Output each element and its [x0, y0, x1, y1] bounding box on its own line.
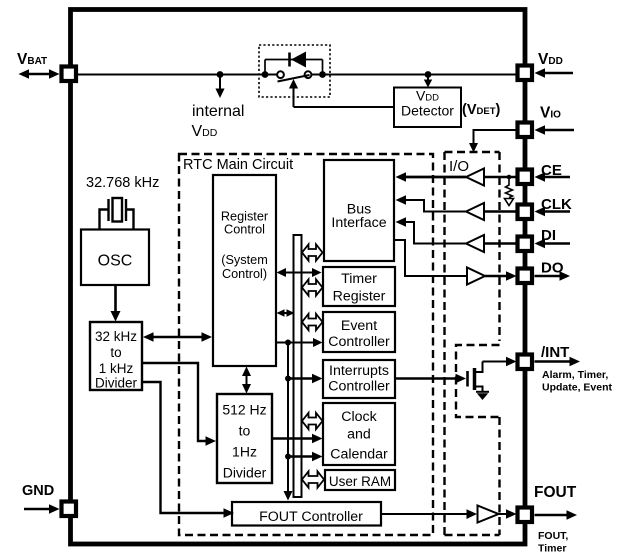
- svg-text:Control: Control: [224, 223, 265, 237]
- svg-text:Register: Register: [221, 210, 269, 224]
- svg-text:/INT: /INT: [541, 344, 569, 361]
- svg-text:Timer: Timer: [538, 543, 566, 553]
- svg-text:Event: Event: [341, 318, 377, 334]
- svg-text:32.768 kHz: 32.768 kHz: [86, 175, 159, 191]
- svg-text:to: to: [239, 423, 251, 439]
- svg-text:RTC Main Circuit: RTC Main Circuit: [183, 157, 293, 173]
- svg-text:internal: internal: [192, 103, 244, 120]
- svg-text:VDD: VDD: [538, 51, 563, 68]
- svg-text:FOUT Controller: FOUT Controller: [259, 509, 363, 525]
- svg-text:Alarm, Timer,: Alarm, Timer,: [542, 369, 608, 381]
- svg-text:OSC: OSC: [98, 253, 133, 270]
- svg-text:VDD: VDD: [192, 123, 218, 140]
- svg-text:(System: (System: [221, 253, 268, 267]
- svg-text:Register: Register: [333, 289, 386, 305]
- svg-text:Divider: Divider: [95, 376, 138, 391]
- svg-text:Calendar: Calendar: [330, 447, 388, 463]
- svg-text:User RAM: User RAM: [329, 474, 391, 489]
- svg-text:Controller: Controller: [328, 334, 390, 350]
- svg-text:1 kHz: 1 kHz: [99, 361, 134, 376]
- svg-text:to: to: [110, 345, 121, 360]
- svg-text:I/O: I/O: [449, 158, 469, 175]
- svg-text:VBAT: VBAT: [17, 51, 47, 68]
- svg-text:GND: GND: [22, 483, 54, 499]
- svg-text:Clock: Clock: [341, 409, 377, 425]
- svg-text:Detector: Detector: [401, 103, 454, 119]
- svg-text:Divider: Divider: [223, 465, 267, 481]
- svg-text:FOUT,: FOUT,: [538, 530, 568, 542]
- svg-text:512 Hz: 512 Hz: [222, 402, 266, 418]
- svg-text:32 kHz: 32 kHz: [95, 329, 137, 344]
- svg-text:1Hz: 1Hz: [232, 444, 257, 460]
- svg-text:FOUT: FOUT: [534, 484, 577, 501]
- svg-text:Update, Event: Update, Event: [542, 382, 613, 394]
- svg-text:Controller: Controller: [328, 379, 390, 395]
- svg-text:Interface: Interface: [331, 215, 386, 231]
- svg-text:Timer: Timer: [341, 271, 377, 287]
- svg-text:and: and: [347, 427, 371, 443]
- svg-text:Control): Control): [222, 267, 267, 281]
- svg-text:VIO: VIO: [540, 105, 561, 122]
- svg-text:(VDET): (VDET): [462, 102, 501, 118]
- svg-text:Interrupts: Interrupts: [329, 363, 389, 379]
